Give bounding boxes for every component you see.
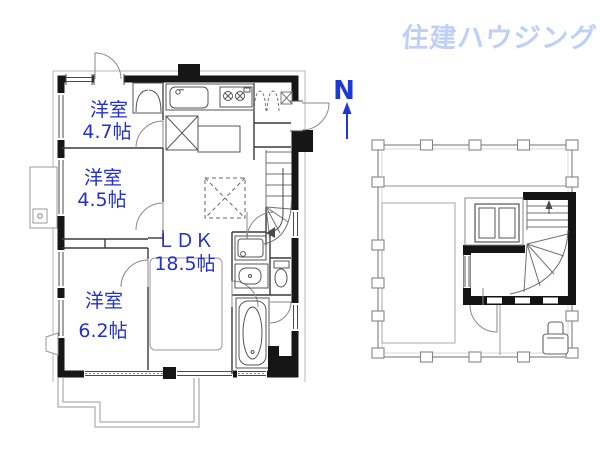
room2-size: 4.5帖 bbox=[77, 189, 126, 211]
wall-jog bbox=[295, 130, 313, 152]
meter-box bbox=[33, 209, 47, 223]
water-heater bbox=[543, 322, 568, 354]
penthouse-door-arc bbox=[470, 305, 497, 332]
balcony bbox=[58, 378, 199, 427]
entry-door-arc bbox=[302, 103, 329, 130]
penthouse-stair-arrow bbox=[546, 200, 553, 209]
wall-pillar bbox=[178, 64, 200, 79]
room4-size: 6.2帖 bbox=[78, 320, 127, 342]
roof-area-outline bbox=[382, 203, 455, 343]
ldk-size: 18.5帖 bbox=[154, 253, 215, 275]
room1-size: 4.7帖 bbox=[82, 121, 131, 143]
room1-name: 洋室 bbox=[90, 99, 128, 121]
left-exterior bbox=[30, 167, 58, 355]
room4-name: 洋室 bbox=[85, 290, 123, 312]
main-floor-plan: 洋室 4.7帖 洋室 4.5帖 ＬＤＫ 18.5帖 洋室 6.2帖 bbox=[30, 53, 329, 427]
ldk-name: ＬＤＫ bbox=[156, 230, 213, 252]
penthouse bbox=[463, 192, 576, 332]
floor-plan-drawing: 洋室 4.7帖 洋室 4.5帖 ＬＤＫ 18.5帖 洋室 6.2帖 N bbox=[0, 0, 600, 450]
brand-logo-text: 住建ハウジング bbox=[400, 22, 598, 54]
floor-plan-page: 洋室 4.7帖 洋室 4.5帖 ＬＤＫ 18.5帖 洋室 6.2帖 N bbox=[0, 0, 600, 450]
penthouse-window bbox=[475, 204, 519, 242]
shutter-box bbox=[46, 333, 58, 355]
north-label: N bbox=[333, 76, 355, 106]
north-indicator: N bbox=[333, 76, 355, 139]
roof-plan bbox=[372, 140, 578, 362]
room2-name: 洋室 bbox=[84, 167, 122, 189]
brand-logo: 住建ハウジング bbox=[400, 22, 598, 54]
